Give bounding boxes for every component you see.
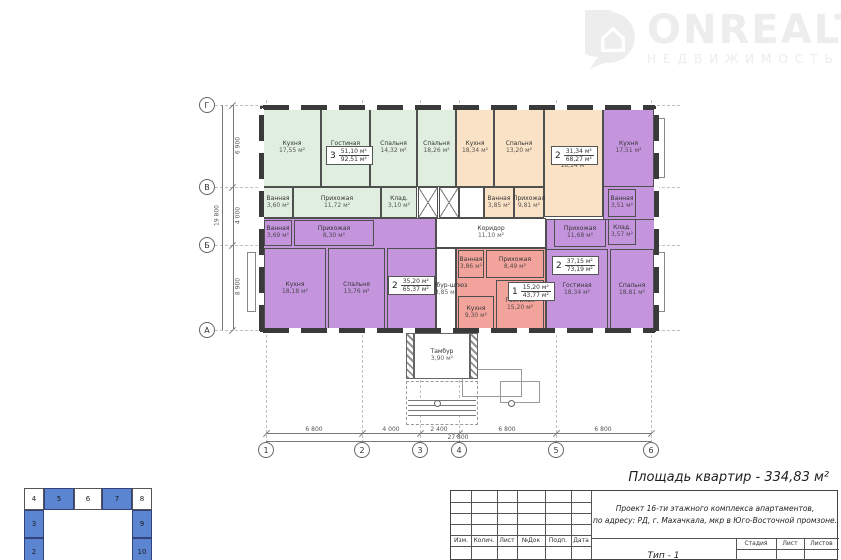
- room-bedroom: Спальня 18,26 м²: [417, 109, 456, 187]
- revision-header: Подп.: [545, 535, 571, 546]
- room-area: 17,51 м²: [615, 148, 641, 155]
- room-area: 18,34 м²: [462, 148, 488, 155]
- room-hallway: Прихожая 8,30 м²: [294, 220, 374, 246]
- logo-subtitle-text: НЕДВИЖИМОСТЬ: [647, 52, 841, 66]
- stamp-living-area: 35,20 м²: [401, 278, 431, 286]
- drawing-sheet: ONREALT НЕДВИЖИМОСТЬ Кухня 17,55 м² Гост…: [0, 0, 841, 560]
- windows-right-wall: [654, 109, 659, 331]
- room-kitchen: Кухня 18,34 м²: [456, 109, 494, 187]
- room-airlock: Тамбур-шлюз 3,85 м²: [436, 248, 456, 331]
- revision-header: Лист: [497, 535, 517, 546]
- room-bedroom: Спальня 14,32 м²: [370, 109, 417, 187]
- room-kitchen: Кухня 18,18 м²: [264, 248, 326, 330]
- room-area: 15,20 м²: [507, 305, 533, 312]
- balcony: [247, 252, 256, 312]
- room-area: 3,85 м²: [488, 203, 510, 210]
- room-area: 11,72 м²: [324, 203, 350, 210]
- stamp-total-area: 43,77 м²: [523, 292, 549, 299]
- elevator-lobby: [459, 187, 484, 218]
- dimension-value: 6 800: [594, 426, 611, 433]
- room-bedroom: Спальня 18,81 м²: [610, 249, 654, 331]
- windows-bottom-wall: [263, 328, 655, 333]
- keyplan-section: 5: [44, 488, 74, 510]
- apartment-stamp: 2 37,15 м² 73,19 м²: [552, 256, 599, 275]
- room-vestibule: Тамбур 3,90 м²: [414, 333, 470, 379]
- room-kitchen: Кухня 17,55 м²: [263, 109, 321, 187]
- dimension-value: 4 000: [235, 196, 242, 236]
- room-area: 11,10 м²: [478, 233, 504, 240]
- entrance-wall-hatch: [406, 333, 414, 379]
- keyplan-section: 3: [24, 510, 44, 538]
- stamp-room-count: 2: [556, 261, 562, 271]
- apartments-area-text: Площадь квартир - 334,83 м²: [628, 470, 829, 485]
- room-bathroom: Ванная 3,60 м²: [263, 187, 293, 218]
- apartment-stamp: 2 31,34 м² 68,27 м²: [551, 146, 598, 165]
- room-area: 3,86 м²: [460, 264, 482, 271]
- entrance-wall-hatch: [470, 333, 478, 379]
- stamp-room-count: 2: [555, 151, 561, 161]
- dimension-line-total: [222, 105, 223, 330]
- room-area: 8,49 м²: [504, 264, 526, 271]
- keyplan-section: 8: [132, 488, 152, 510]
- room-area: 18,26 м²: [423, 148, 449, 155]
- stamp-living-area: 31,34 м²: [564, 148, 594, 156]
- dimension-value: 6 800: [498, 426, 515, 433]
- room-area: 14,32 м²: [380, 148, 406, 155]
- room-area: 3,57 м²: [611, 232, 633, 239]
- title-block: Изм. Колич. Лист №Док Подп. Дата Проект …: [450, 490, 838, 560]
- axis-label-a: А: [199, 322, 215, 338]
- axis-label-5: 5: [548, 442, 564, 458]
- elevator-shaft: [439, 187, 459, 218]
- keyplan-section: 9: [132, 510, 152, 538]
- room-bedroom: Спальня 13,76 м²: [328, 248, 385, 330]
- room-area: 18,34 м²: [564, 290, 590, 297]
- apartment-stamp: 2 35,20 м² 65,37 м²: [388, 276, 435, 295]
- room-area: 9,30 м²: [465, 313, 487, 320]
- room-area: 9,81 м²: [518, 203, 540, 210]
- revision-header: №Док: [517, 535, 545, 546]
- titleblock-line: [451, 524, 591, 525]
- stage-header: Стадия: [736, 538, 776, 549]
- stamp-room-count: 3: [330, 151, 336, 161]
- logo-pin-house-icon: [585, 10, 641, 72]
- key-plan: 4 5 6 7 8 3 2 9 10: [24, 487, 154, 560]
- room-hallway: Прихожая 8,49 м²: [486, 250, 544, 278]
- room-bedroom: Спальня 13,20 м²: [494, 109, 544, 187]
- elevator-shaft: [418, 187, 438, 218]
- keyplan-section: 2: [24, 538, 44, 560]
- room-bathroom: Ванная 3,85 м²: [484, 187, 514, 218]
- keyplan-section: 4: [24, 488, 44, 510]
- room-storage: Клад. 3,10 м²: [381, 187, 417, 218]
- room-area: 18,81 м²: [619, 290, 645, 297]
- revision-header: Изм.: [451, 535, 471, 546]
- room-area: 17,55 м²: [279, 148, 305, 155]
- room-area: 13,76 м²: [343, 289, 369, 296]
- titleblock-line: [451, 502, 591, 503]
- room-storage: Клад. 3,57 м²: [608, 219, 636, 245]
- stamp-room-count: 1: [512, 287, 518, 297]
- room-area: 3,51 м²: [611, 203, 633, 210]
- dimension-value: 4 000: [382, 426, 399, 433]
- room-area: 3,85 м²: [435, 290, 457, 297]
- dimension-total-value: 27 800: [448, 434, 469, 441]
- stamp-total-area: 65,37 м²: [403, 286, 429, 293]
- dimension-value: 8 900: [235, 267, 242, 307]
- axis-label-b: Б: [199, 237, 215, 253]
- revision-header: Колич.: [471, 535, 497, 546]
- apartment-stamp: 1 15,20 м² 43,77 м²: [508, 282, 555, 301]
- room-area: 11,68 м²: [567, 233, 593, 240]
- keyplan-section: 6: [74, 488, 102, 510]
- project-description: Проект 16-ти этажного комплекса апартаме…: [591, 493, 839, 537]
- axis-label-3: 3: [412, 442, 428, 458]
- project-line-1: Проект 16-ти этажного комплекса апартаме…: [616, 503, 815, 515]
- room-area: 3,60 м²: [267, 203, 289, 210]
- axis-label-6: 6: [643, 442, 659, 458]
- axis-label-4: 4: [451, 442, 467, 458]
- apartment-stamp: 3 51,10 м² 92,51 м²: [326, 146, 373, 165]
- dimension-value: 6 900: [235, 126, 242, 166]
- dimension-total-value: 19 800: [214, 196, 221, 236]
- room-area: 18,18 м²: [282, 289, 308, 296]
- stage-header: Лист: [776, 538, 804, 549]
- entrance-steps: [408, 400, 476, 416]
- room-bathroom: Ванная 3,51 м²: [608, 189, 636, 217]
- project-line-2: по адресу: РД, г. Махачкала, мкр в Юго-В…: [593, 515, 837, 527]
- canopy-column: [508, 400, 515, 407]
- axis-label-g: Г: [199, 97, 215, 113]
- stamp-living-area: 51,10 м²: [339, 148, 369, 156]
- titleblock-line: [451, 546, 591, 547]
- room-bathroom: Ванная 3,69 м²: [264, 220, 292, 246]
- stamp-room-count: 2: [392, 281, 398, 291]
- axis-label-v: В: [199, 179, 215, 195]
- revision-header: Дата: [571, 535, 591, 546]
- stage-header: Листов: [804, 538, 839, 549]
- room-hallway: Прихожая 11,72 м²: [293, 187, 381, 218]
- stamp-total-area: 68,27 м²: [566, 156, 592, 163]
- canopy-column: [434, 400, 441, 407]
- sheet-name: Тип - 1: [591, 548, 736, 560]
- keyplan-section: 10: [132, 538, 152, 560]
- room-area: 8,30 м²: [323, 233, 345, 240]
- titleblock-line: [451, 513, 591, 514]
- stamp-living-area: 15,20 м²: [521, 284, 551, 292]
- axis-label-2: 2: [354, 442, 370, 458]
- room-corridor: Коридор 11,10 м²: [436, 218, 546, 248]
- room-hallway: Прихожая 11,68 м²: [554, 219, 606, 247]
- dimension-value: 6 800: [305, 426, 322, 433]
- room-area: 3,10 м²: [388, 203, 410, 210]
- titleblock-line: [736, 549, 839, 550]
- room-bathroom: Ванная 3,86 м²: [458, 250, 484, 278]
- logo-brand-text: ONREALT: [647, 10, 841, 50]
- windows-top-wall: [263, 105, 655, 110]
- keyplan-section: 7: [102, 488, 132, 510]
- room-area: 3,90 м²: [431, 356, 453, 363]
- room-area: 3,69 м²: [267, 233, 289, 240]
- onrealt-logo: ONREALT НЕДВИЖИМОСТЬ: [585, 10, 841, 72]
- room-kitchen: Кухня 9,30 м²: [458, 296, 494, 330]
- axis-label-1: 1: [258, 442, 274, 458]
- dimension-value: 2 400: [430, 426, 447, 433]
- stamp-total-area: 73,19 м²: [567, 266, 593, 273]
- entrance-canopy-outline: [500, 381, 540, 403]
- room-kitchen: Кухня 17,51 м²: [603, 109, 654, 187]
- stamp-total-area: 92,51 м²: [341, 156, 367, 163]
- room-area: 13,20 м²: [506, 148, 532, 155]
- room-hallway: Прихожая 9,81 м²: [514, 187, 544, 218]
- windows-left-wall: [259, 109, 264, 331]
- stamp-living-area: 37,15 м²: [565, 258, 595, 266]
